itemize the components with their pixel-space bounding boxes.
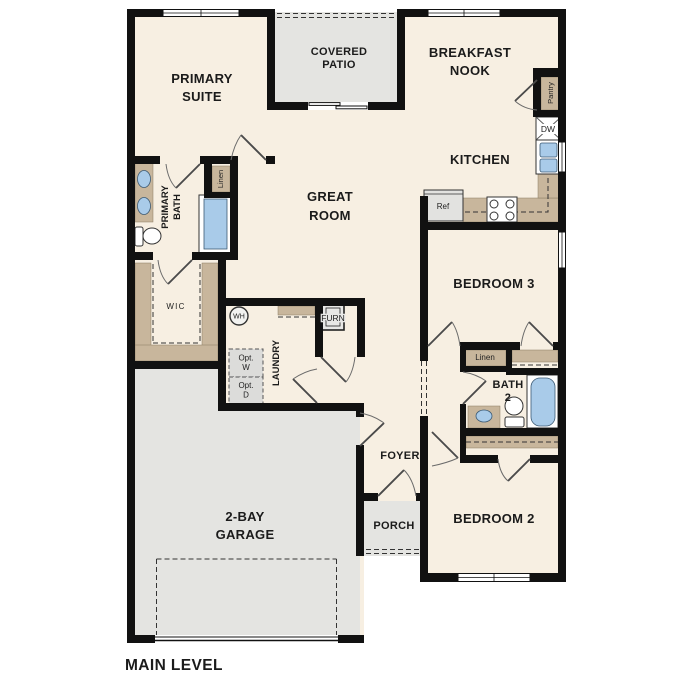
label-primary-suite: PRIMARY	[171, 71, 233, 86]
label-primary-suite: SUITE	[182, 89, 222, 104]
toilet-icon	[143, 228, 161, 244]
burner-icon	[506, 212, 514, 220]
sliding-door-icon	[308, 102, 368, 110]
label-laundry: LAUNDRY	[271, 339, 282, 386]
kitchen-sink-basin-icon	[540, 143, 557, 157]
kitchen-counter-side	[538, 174, 560, 198]
label-breakfast-nook: BREAKFAST	[429, 45, 511, 60]
label-bath2: BATH	[493, 379, 524, 391]
label-covered-patio: COVERED	[311, 46, 368, 58]
label-primary-linen: Linen	[216, 170, 225, 188]
label-hall-linen: Linen	[475, 353, 495, 362]
label-bath2: 2	[505, 392, 511, 404]
sink-icon	[138, 171, 151, 188]
label-refrigerator: Ref	[437, 202, 450, 211]
label-pantry: Pantry	[546, 82, 555, 104]
label-kitchen: KITCHEN	[450, 152, 510, 167]
laundry-shelf	[278, 306, 315, 315]
label-primary-bath: PRIMARY	[160, 185, 171, 229]
burner-icon	[490, 212, 498, 220]
label-bedroom2: BEDROOM 2	[453, 511, 534, 526]
garage-door	[155, 635, 338, 643]
burner-icon	[506, 200, 514, 208]
label-opt-dryer: D	[243, 391, 249, 400]
bedroom2-closet	[466, 436, 558, 448]
sink-icon	[476, 410, 492, 422]
label-main-level: MAIN LEVEL	[125, 657, 223, 674]
label-opt-dryer: Opt.	[238, 381, 253, 390]
burner-icon	[490, 200, 498, 208]
kitchen-sink-basin-icon	[540, 159, 557, 172]
label-garage: 2-BAY	[225, 509, 264, 524]
covered-patio-area	[275, 12, 397, 104]
label-dishwasher: DW	[541, 124, 555, 134]
label-opt-washer: W	[242, 363, 250, 372]
label-opt-washer: Opt.	[238, 354, 253, 363]
label-primary-bath: BATH	[172, 194, 183, 220]
wic-shelf-bottom	[135, 345, 218, 361]
label-foyer: FOYER	[380, 450, 419, 462]
toilet-tank-icon	[505, 417, 524, 427]
label-great-room: GREAT	[307, 189, 353, 204]
bathtub-icon	[531, 378, 555, 426]
label-water-heater: WH	[233, 314, 245, 321]
label-garage: GARAGE	[216, 527, 275, 542]
floorplan-page: PRIMARY SUITE COVERED PATIO BREAKFAST NO…	[0, 0, 687, 687]
bedroom3-closet	[512, 350, 558, 362]
shower-pan-icon	[204, 199, 227, 249]
toilet-tank-icon	[135, 227, 143, 246]
label-porch: PORCH	[373, 520, 414, 532]
label-covered-patio: PATIO	[322, 59, 356, 71]
sink-icon	[138, 198, 151, 215]
label-breakfast-nook: NOOK	[450, 63, 491, 78]
label-great-room: ROOM	[309, 208, 351, 223]
label-bedroom3: BEDROOM 3	[453, 276, 534, 291]
floorplan-drawing: PRIMARY SUITE COVERED PATIO BREAKFAST NO…	[0, 0, 687, 687]
label-wic: WIC	[166, 302, 185, 311]
label-furnace: FURN	[321, 313, 345, 323]
